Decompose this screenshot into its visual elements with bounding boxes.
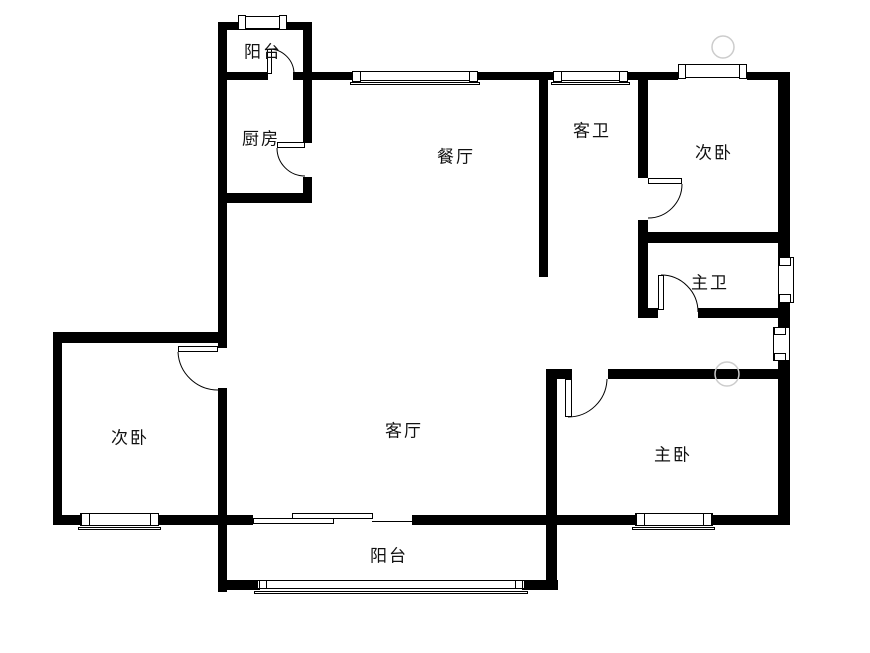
window [469, 71, 478, 82]
room-label-kitchen: 厨房 [242, 131, 280, 148]
window [257, 580, 525, 589]
window [515, 580, 523, 589]
wall [710, 515, 790, 525]
wall [53, 515, 82, 525]
window [774, 327, 786, 335]
window [703, 513, 712, 526]
window [619, 71, 628, 82]
wall [628, 72, 678, 80]
room-label-balcony-bottom: 阳台 [370, 548, 408, 565]
wall [539, 80, 548, 277]
wall [522, 580, 558, 590]
window [259, 580, 267, 589]
room-label-living-room: 客厅 [385, 423, 423, 440]
window [352, 71, 478, 81]
wall [698, 308, 790, 318]
window [350, 82, 480, 85]
door-swing-arc [568, 379, 607, 417]
window [774, 353, 786, 361]
wall [638, 308, 658, 318]
window [779, 257, 791, 266]
wall [218, 388, 227, 592]
door-swing-arc [277, 148, 305, 176]
window [678, 64, 686, 79]
window [150, 513, 159, 526]
wall [53, 332, 62, 525]
wall [303, 72, 353, 80]
door-leaf [658, 275, 664, 310]
window [292, 513, 373, 519]
wall [53, 332, 218, 343]
wall [778, 72, 790, 258]
wall [478, 72, 553, 80]
wall [638, 232, 790, 243]
window [553, 71, 562, 82]
room-label-second-bedroom-left: 次卧 [111, 430, 149, 447]
window [779, 294, 791, 303]
wall [558, 515, 637, 525]
door-swing-arc [648, 184, 682, 218]
door-swing-arc [178, 352, 218, 390]
window [238, 15, 246, 30]
wall [218, 22, 227, 348]
wall [227, 515, 253, 525]
wall [303, 22, 312, 143]
window [279, 15, 287, 30]
wall [546, 369, 557, 590]
wall [778, 360, 790, 524]
window [81, 513, 90, 526]
wall [412, 515, 558, 525]
door-leaf [648, 178, 682, 184]
window [553, 71, 628, 81]
window [636, 513, 645, 526]
room-label-dining-room: 餐厅 [437, 149, 475, 166]
door-leaf [178, 346, 218, 352]
window [352, 71, 361, 82]
window [739, 64, 747, 79]
door-swing-layer [0, 0, 870, 653]
door-leaf [277, 142, 305, 148]
room-label-second-bedroom-right: 次卧 [695, 145, 733, 162]
wall [608, 369, 790, 379]
room-label-master-bedroom: 主卧 [654, 447, 692, 464]
threshold-line [372, 521, 412, 522]
wall [638, 80, 648, 178]
wall [218, 72, 268, 80]
window [678, 64, 747, 78]
watermark-circle [712, 36, 734, 58]
wall [218, 580, 260, 590]
room-label-guest-bathroom: 客卫 [573, 123, 611, 140]
wall [227, 193, 312, 203]
window [635, 513, 713, 526]
window [78, 527, 161, 530]
window [80, 513, 159, 526]
window [254, 591, 528, 594]
room-label-balcony-top: 阳台 [244, 44, 282, 61]
floorplan: 阳台厨房餐厅客卫次卧主卫次卧客厅主卧阳台 [0, 0, 870, 653]
window [551, 82, 630, 85]
room-label-master-bathroom: 主卫 [691, 275, 729, 292]
wall [158, 515, 227, 525]
door-leaf [565, 379, 572, 417]
window [632, 527, 715, 530]
wall [293, 72, 303, 80]
